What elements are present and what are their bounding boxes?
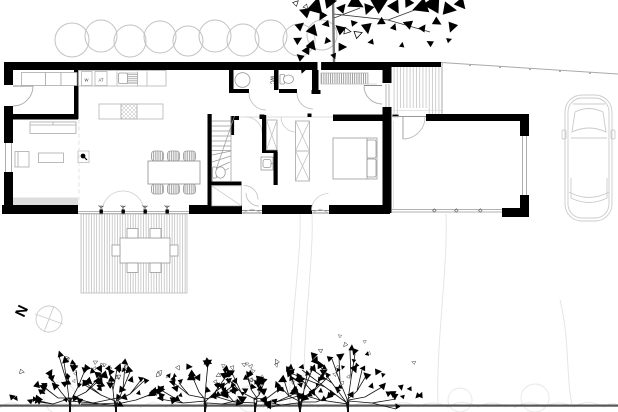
svg-text:W: W bbox=[85, 78, 89, 83]
svg-text:WC: WC bbox=[269, 76, 275, 85]
svg-text:AT: AT bbox=[98, 78, 103, 83]
